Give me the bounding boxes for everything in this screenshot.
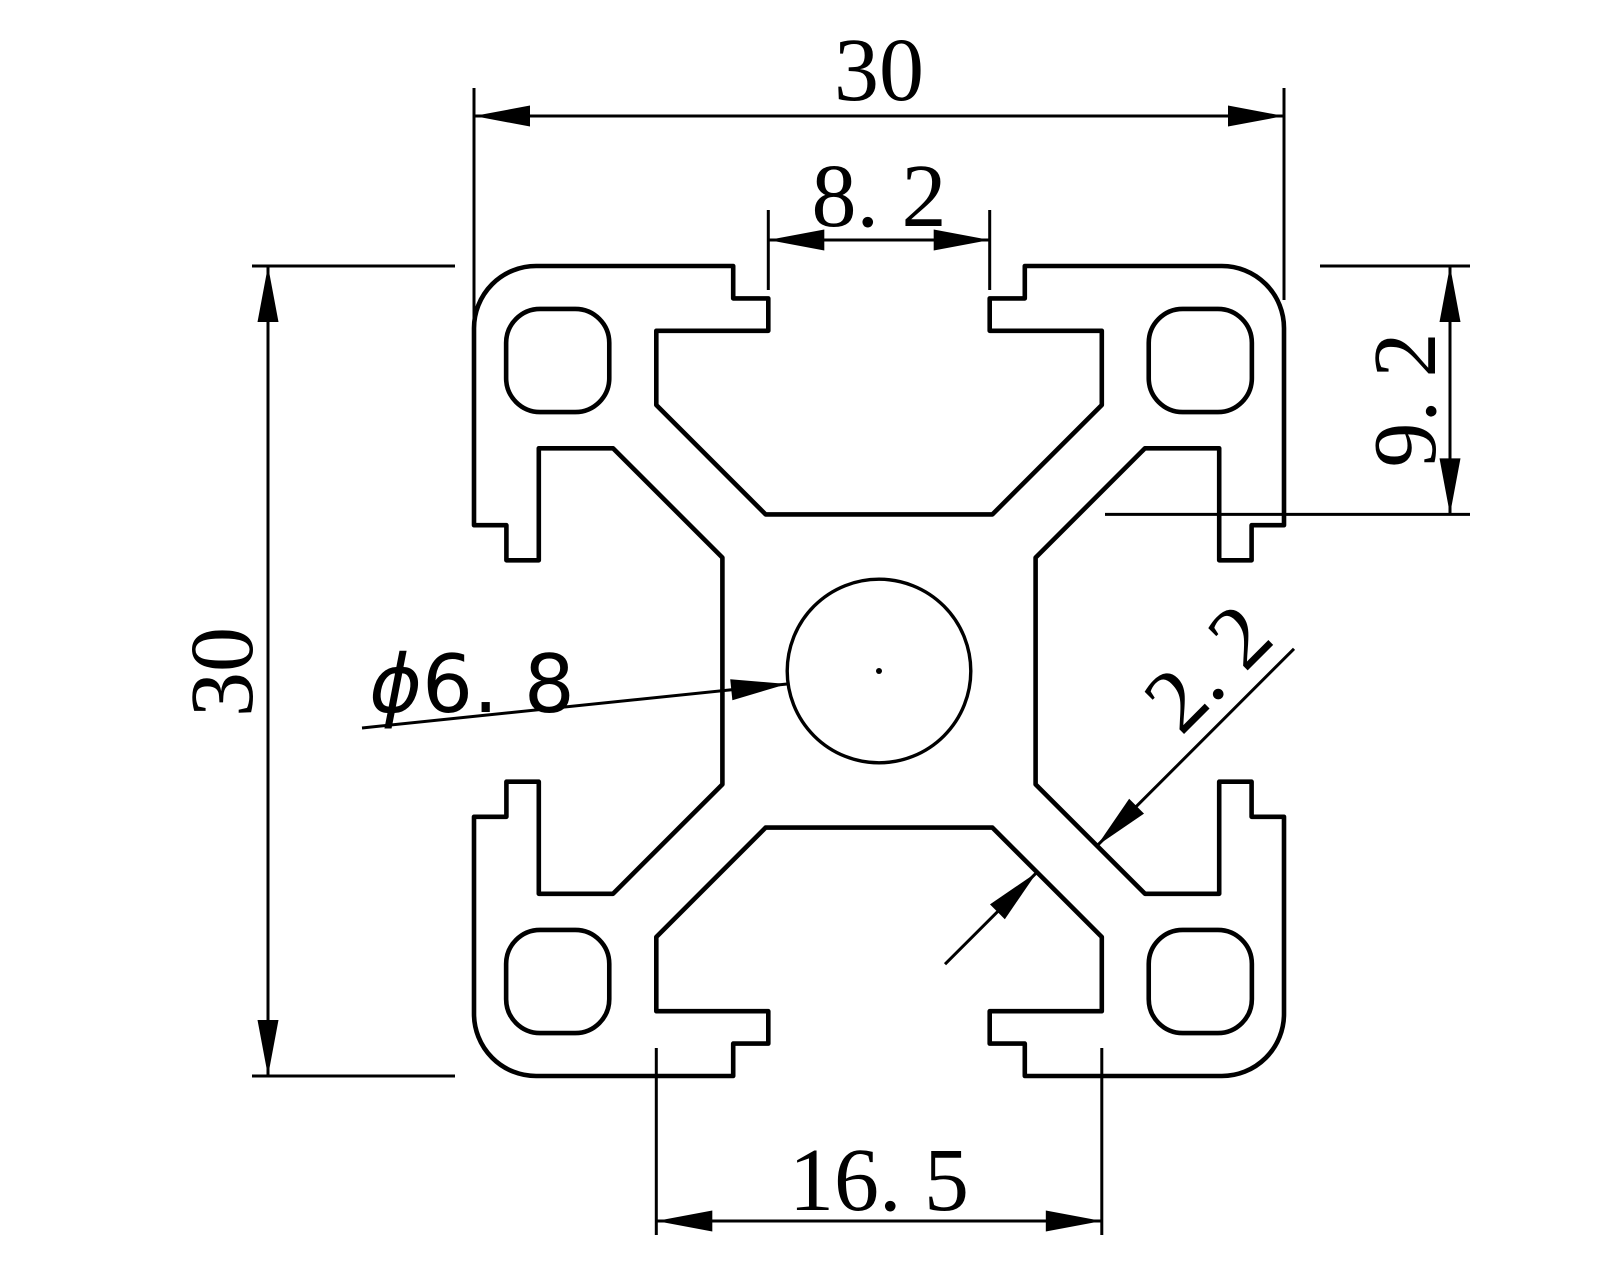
dim-slot-opening-label: 8. 2 [812, 147, 947, 246]
center-hole-value: 6. 8 [422, 638, 575, 731]
dimension-labels: 30 8. 2 9. 2 30 16. 5 ϕ6. 8 2. 2 [173, 21, 1455, 1230]
dim-center-hole-label: ϕ6. 8 [369, 638, 574, 731]
dim-web-thickness-label: 2. 2 [1125, 585, 1290, 750]
dim-top-width-label: 30 [834, 21, 924, 120]
arrow-center-hole [730, 679, 787, 700]
dim-slot-depth-label: 9. 2 [1356, 333, 1455, 468]
arrow-chamber-width-left [656, 1211, 712, 1232]
dim-left-height-label: 30 [173, 627, 272, 717]
dim-chamber-width-label: 16. 5 [789, 1131, 969, 1230]
arrow-chamber-width-right [1046, 1211, 1102, 1232]
diameter-symbol: ϕ [369, 638, 422, 731]
drawing-sheet: 30 8. 2 9. 2 30 16. 5 ϕ6. 8 2. 2 [0, 0, 1600, 1280]
center-mark-dot [876, 668, 882, 674]
arrow-slot-depth-top [1440, 266, 1461, 322]
technical-drawing-canvas: 30 8. 2 9. 2 30 16. 5 ϕ6. 8 2. 2 [0, 0, 1600, 1280]
arrow-left-height-top [258, 266, 279, 322]
arrow-top-width-left [474, 106, 530, 127]
arrow-top-width-right [1228, 106, 1284, 127]
arrow-left-height-bottom [258, 1020, 279, 1076]
